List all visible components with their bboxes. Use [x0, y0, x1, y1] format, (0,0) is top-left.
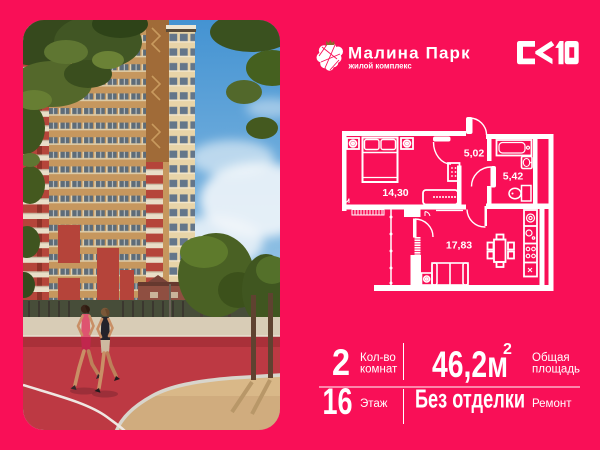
- svg-text:Малина Парк: Малина Парк: [348, 44, 471, 63]
- svg-text:2: 2: [332, 342, 350, 383]
- svg-text:2: 2: [503, 341, 512, 358]
- svg-text:5,42: 5,42: [503, 171, 524, 183]
- svg-text:46,2м: 46,2м: [432, 344, 508, 385]
- svg-text:комнат: комнат: [360, 364, 398, 376]
- svg-text:14,30: 14,30: [382, 187, 408, 199]
- svg-text:5,02: 5,02: [464, 148, 485, 160]
- svg-text:Ремонт: Ремонт: [532, 398, 572, 410]
- svg-text:Без отделки: Без отделки: [415, 384, 525, 414]
- svg-text:17,83: 17,83: [446, 240, 472, 252]
- svg-text:16: 16: [323, 381, 353, 422]
- svg-text:площадь: площадь: [532, 364, 580, 376]
- svg-text:жилой комплекс: жилой комплекс: [348, 62, 413, 71]
- svg-text:Кол-во: Кол-во: [360, 352, 396, 364]
- svg-text:Этаж: Этаж: [360, 398, 388, 410]
- svg-text:Общая: Общая: [532, 352, 570, 364]
